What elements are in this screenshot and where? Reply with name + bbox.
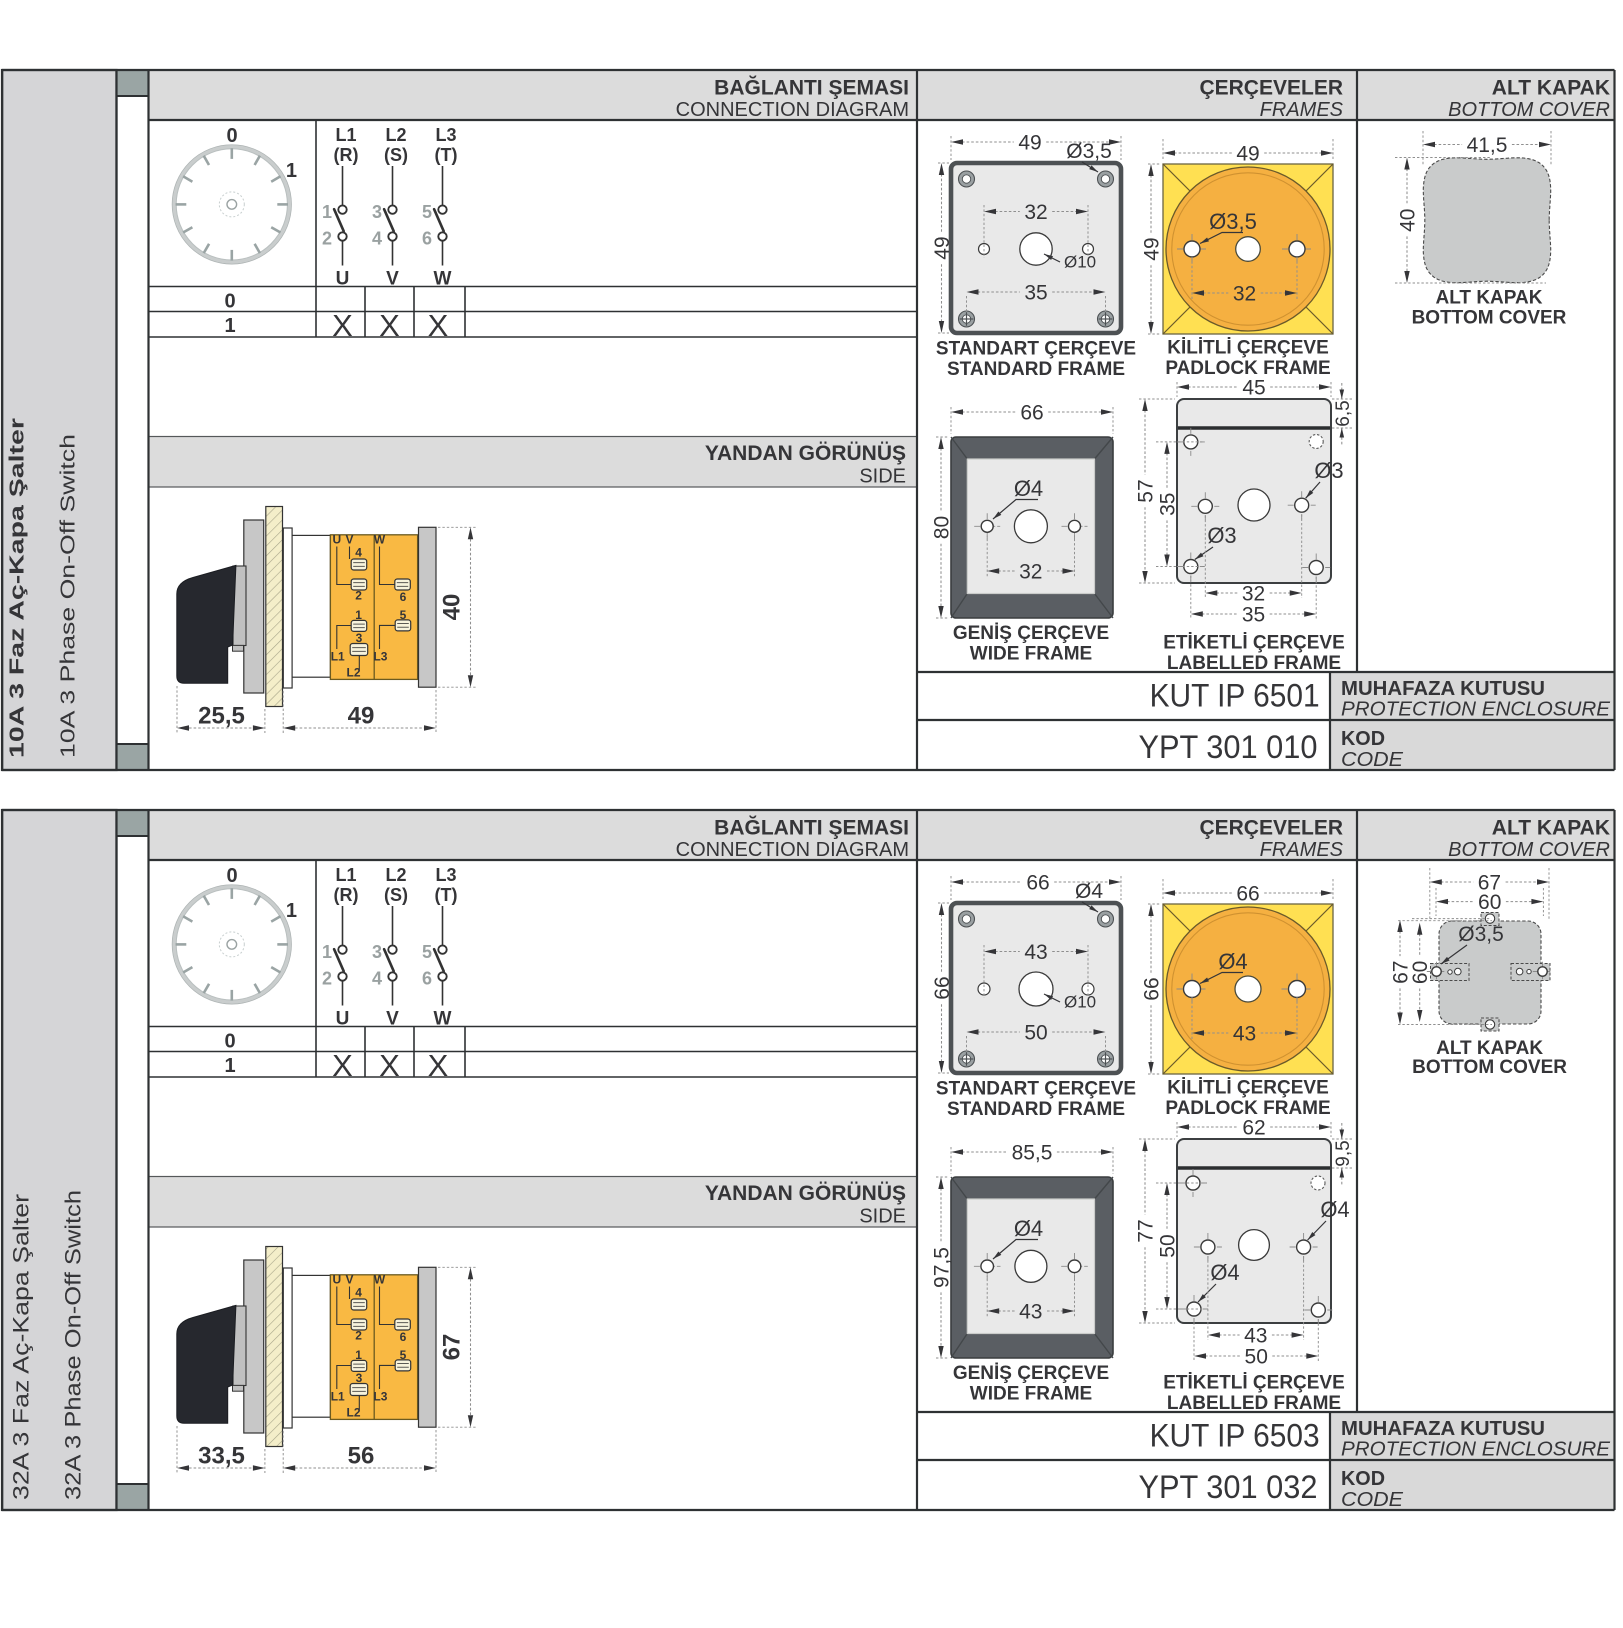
svg-text:10A 3 Phase On-Off Switch: 10A 3 Phase On-Off Switch xyxy=(58,434,80,758)
svg-text:77: 77 xyxy=(1135,1219,1158,1242)
svg-text:YPT 301 010: YPT 301 010 xyxy=(1139,729,1318,765)
svg-text:BAĞLANTI ŞEMASI: BAĞLANTI ŞEMASI xyxy=(714,816,909,840)
svg-text:Ø4: Ø4 xyxy=(1014,1216,1043,1241)
svg-text:YPT 301 032: YPT 301 032 xyxy=(1139,1469,1318,1505)
svg-text:FRAMES: FRAMES xyxy=(1260,99,1344,121)
svg-text:GENİŞ ÇERÇEVE: GENİŞ ÇERÇEVE xyxy=(953,1363,1109,1384)
svg-text:STANDART ÇERÇEVE: STANDART ÇERÇEVE xyxy=(936,339,1136,360)
svg-text:60: 60 xyxy=(1478,891,1501,914)
svg-text:BOTTOM COVER: BOTTOM COVER xyxy=(1448,839,1610,861)
svg-text:X: X xyxy=(332,308,353,343)
svg-text:85,5: 85,5 xyxy=(1012,1142,1053,1165)
svg-text:U: U xyxy=(332,533,341,547)
svg-text:32: 32 xyxy=(1024,201,1047,224)
svg-text:X: X xyxy=(332,1048,353,1083)
svg-text:0: 0 xyxy=(224,290,235,312)
svg-text:BOTTOM COVER: BOTTOM COVER xyxy=(1448,99,1610,121)
svg-text:KİLİTLİ ÇERÇEVE: KİLİTLİ ÇERÇEVE xyxy=(1167,338,1329,359)
svg-text:2: 2 xyxy=(355,589,362,603)
svg-text:6: 6 xyxy=(422,969,432,989)
svg-text:97,5: 97,5 xyxy=(931,1247,954,1288)
svg-text:43: 43 xyxy=(1233,1023,1256,1046)
svg-text:Ø3: Ø3 xyxy=(1314,458,1343,483)
svg-text:25,5: 25,5 xyxy=(198,703,245,730)
svg-text:CONNECTION DIAGRAM: CONNECTION DIAGRAM xyxy=(676,839,909,861)
svg-text:56: 56 xyxy=(348,1443,375,1470)
svg-text:3: 3 xyxy=(356,631,363,645)
svg-text:STANDARD FRAME: STANDARD FRAME xyxy=(947,359,1125,380)
svg-text:50: 50 xyxy=(1245,1346,1268,1369)
svg-text:L2: L2 xyxy=(346,1406,360,1420)
svg-text:49: 49 xyxy=(1141,237,1164,260)
svg-text:50: 50 xyxy=(1024,1022,1047,1045)
svg-text:Ø3: Ø3 xyxy=(1207,523,1236,548)
svg-text:32A 3 Phase On-Off Switch: 32A 3 Phase On-Off Switch xyxy=(61,1190,86,1500)
svg-text:3: 3 xyxy=(372,942,382,962)
svg-text:35: 35 xyxy=(1024,282,1047,305)
svg-text:ALT KAPAK: ALT KAPAK xyxy=(1436,1038,1543,1059)
svg-text:U: U xyxy=(336,269,350,290)
svg-text:L2: L2 xyxy=(346,666,360,680)
svg-text:KOD: KOD xyxy=(1341,727,1385,750)
svg-text:57: 57 xyxy=(1135,479,1158,502)
svg-text:X: X xyxy=(428,1048,449,1083)
svg-text:49: 49 xyxy=(348,703,375,730)
svg-text:(T): (T) xyxy=(435,885,458,905)
svg-text:(S): (S) xyxy=(384,145,408,165)
svg-text:SIDE: SIDE xyxy=(859,466,906,488)
svg-text:WIDE FRAME: WIDE FRAME xyxy=(970,644,1092,665)
svg-text:40: 40 xyxy=(439,594,466,621)
svg-text:ALT KAPAK: ALT KAPAK xyxy=(1492,77,1610,100)
svg-text:(T): (T) xyxy=(435,145,458,165)
svg-text:Ø4: Ø4 xyxy=(1075,880,1103,903)
svg-text:6: 6 xyxy=(400,1330,407,1344)
svg-text:V: V xyxy=(345,1273,353,1287)
svg-text:10A 3 Faz Aç-Kapa Şalter: 10A 3 Faz Aç-Kapa Şalter xyxy=(7,418,29,758)
svg-text:5: 5 xyxy=(422,942,432,962)
svg-text:32: 32 xyxy=(1242,583,1265,606)
svg-text:32A 3 Faz Aç-Kapa Şalter: 32A 3 Faz Aç-Kapa Şalter xyxy=(9,1193,34,1500)
svg-text:(R): (R) xyxy=(334,145,359,165)
svg-text:SIDE: SIDE xyxy=(859,1206,906,1228)
svg-text:66: 66 xyxy=(1141,977,1164,1000)
svg-text:1: 1 xyxy=(322,202,332,222)
svg-text:Ø3,5: Ø3,5 xyxy=(1458,923,1504,946)
svg-text:YANDAN GÖRÜNÜŞ: YANDAN GÖRÜNÜŞ xyxy=(705,442,906,465)
svg-text:W: W xyxy=(374,1273,386,1287)
svg-text:2: 2 xyxy=(322,969,332,989)
svg-text:32: 32 xyxy=(1019,561,1042,584)
svg-text:2: 2 xyxy=(322,229,332,249)
svg-text:V: V xyxy=(345,533,353,547)
svg-text:66: 66 xyxy=(931,976,954,999)
svg-text:U: U xyxy=(336,1009,350,1030)
svg-text:1: 1 xyxy=(286,900,297,922)
svg-text:49: 49 xyxy=(1018,132,1041,155)
svg-text:2: 2 xyxy=(355,1329,362,1343)
svg-text:X: X xyxy=(428,308,449,343)
svg-text:U: U xyxy=(332,1273,341,1287)
svg-text:Ø3,5: Ø3,5 xyxy=(1209,209,1257,234)
svg-text:W: W xyxy=(374,533,386,547)
svg-text:X: X xyxy=(379,1048,400,1083)
svg-text:60: 60 xyxy=(1409,961,1432,984)
svg-text:CODE: CODE xyxy=(1341,748,1403,771)
svg-text:45: 45 xyxy=(1242,377,1265,400)
svg-text:32: 32 xyxy=(1233,283,1256,306)
svg-text:L3: L3 xyxy=(435,125,456,145)
svg-text:W: W xyxy=(434,1009,452,1030)
svg-text:43: 43 xyxy=(1019,1301,1042,1324)
svg-text:LABELLED FRAME: LABELLED FRAME xyxy=(1167,653,1341,674)
svg-text:KUT IP 6501: KUT IP 6501 xyxy=(1150,678,1320,714)
svg-text:PROTECTION ENCLOSURE: PROTECTION ENCLOSURE xyxy=(1341,1438,1610,1461)
svg-text:9,5: 9,5 xyxy=(1333,1140,1354,1166)
svg-text:Ø3,5: Ø3,5 xyxy=(1066,140,1112,163)
svg-text:1: 1 xyxy=(322,942,332,962)
svg-text:STANDART ÇERÇEVE: STANDART ÇERÇEVE xyxy=(936,1079,1136,1100)
svg-text:Ø4: Ø4 xyxy=(1014,476,1043,501)
svg-text:BAĞLANTI ŞEMASI: BAĞLANTI ŞEMASI xyxy=(714,76,909,100)
svg-text:66: 66 xyxy=(1236,883,1259,906)
svg-text:0: 0 xyxy=(224,1030,235,1052)
svg-text:67: 67 xyxy=(439,1334,466,1361)
svg-text:49: 49 xyxy=(1236,143,1259,166)
svg-text:LABELLED FRAME: LABELLED FRAME xyxy=(1167,1393,1341,1414)
svg-text:L1: L1 xyxy=(335,125,356,145)
svg-text:CODE: CODE xyxy=(1341,1488,1403,1511)
svg-text:Ø10: Ø10 xyxy=(1064,993,1096,1012)
svg-text:1: 1 xyxy=(286,160,297,182)
svg-text:FRAMES: FRAMES xyxy=(1260,839,1344,861)
svg-text:PROTECTION ENCLOSURE: PROTECTION ENCLOSURE xyxy=(1341,698,1610,721)
svg-text:L3: L3 xyxy=(373,650,387,664)
svg-text:BOTTOM COVER: BOTTOM COVER xyxy=(1412,1057,1567,1078)
svg-text:0: 0 xyxy=(226,865,237,887)
svg-text:43: 43 xyxy=(1244,1325,1267,1348)
svg-text:ETİKETLİ ÇERÇEVE: ETİKETLİ ÇERÇEVE xyxy=(1163,633,1345,654)
svg-text:6,5: 6,5 xyxy=(1333,400,1354,426)
svg-text:6: 6 xyxy=(422,229,432,249)
svg-text:L1: L1 xyxy=(335,865,356,885)
svg-text:ALT KAPAK: ALT KAPAK xyxy=(1436,288,1543,309)
svg-text:1: 1 xyxy=(355,608,362,622)
svg-text:L3: L3 xyxy=(373,1390,387,1404)
svg-text:66: 66 xyxy=(1026,872,1049,895)
svg-text:5: 5 xyxy=(400,1348,407,1362)
svg-text:ÇERÇEVELER: ÇERÇEVELER xyxy=(1199,77,1343,100)
svg-text:L2: L2 xyxy=(385,865,406,885)
svg-text:62: 62 xyxy=(1242,1117,1265,1140)
svg-text:35: 35 xyxy=(1242,604,1265,627)
svg-text:1: 1 xyxy=(224,315,235,337)
svg-text:YANDAN GÖRÜNÜŞ: YANDAN GÖRÜNÜŞ xyxy=(705,1182,906,1205)
svg-text:Ø4: Ø4 xyxy=(1320,1197,1349,1222)
svg-text:1: 1 xyxy=(224,1055,235,1077)
svg-text:W: W xyxy=(434,269,452,290)
svg-text:V: V xyxy=(386,1009,399,1030)
svg-text:4: 4 xyxy=(372,969,382,989)
svg-text:KİLİTLİ ÇERÇEVE: KİLİTLİ ÇERÇEVE xyxy=(1167,1078,1329,1099)
svg-text:(R): (R) xyxy=(334,885,359,905)
svg-text:L1: L1 xyxy=(331,1390,345,1404)
svg-text:80: 80 xyxy=(931,516,954,539)
svg-text:3: 3 xyxy=(356,1371,363,1385)
svg-text:Ø4: Ø4 xyxy=(1210,1260,1239,1285)
svg-text:66: 66 xyxy=(1020,402,1043,425)
svg-text:50: 50 xyxy=(1157,1234,1180,1257)
svg-text:0: 0 xyxy=(226,125,237,147)
svg-text:(S): (S) xyxy=(384,885,408,905)
svg-text:35: 35 xyxy=(1157,493,1180,516)
svg-text:KOD: KOD xyxy=(1341,1467,1385,1490)
svg-text:49: 49 xyxy=(931,236,954,259)
svg-text:5: 5 xyxy=(422,202,432,222)
svg-text:L2: L2 xyxy=(385,125,406,145)
svg-text:43: 43 xyxy=(1024,941,1047,964)
svg-text:41,5: 41,5 xyxy=(1467,134,1508,157)
svg-text:WIDE FRAME: WIDE FRAME xyxy=(970,1384,1092,1405)
svg-text:GENİŞ ÇERÇEVE: GENİŞ ÇERÇEVE xyxy=(953,623,1109,644)
svg-text:ÇERÇEVELER: ÇERÇEVELER xyxy=(1199,817,1343,840)
svg-text:CONNECTION DIAGRAM: CONNECTION DIAGRAM xyxy=(676,99,909,121)
svg-text:Ø10: Ø10 xyxy=(1064,253,1096,272)
svg-text:Ø4: Ø4 xyxy=(1218,949,1247,974)
svg-text:5: 5 xyxy=(400,608,407,622)
svg-text:1: 1 xyxy=(355,1348,362,1362)
svg-text:40: 40 xyxy=(1397,209,1420,232)
svg-text:STANDARD FRAME: STANDARD FRAME xyxy=(947,1099,1125,1120)
svg-text:L1: L1 xyxy=(331,650,345,664)
svg-text:KUT IP 6503: KUT IP 6503 xyxy=(1150,1418,1320,1454)
svg-text:L3: L3 xyxy=(435,865,456,885)
svg-text:6: 6 xyxy=(400,590,407,604)
svg-text:33,5: 33,5 xyxy=(198,1443,245,1470)
svg-text:4: 4 xyxy=(355,546,362,560)
svg-text:4: 4 xyxy=(372,229,382,249)
svg-text:ETİKETLİ ÇERÇEVE: ETİKETLİ ÇERÇEVE xyxy=(1163,1373,1345,1394)
svg-text:3: 3 xyxy=(372,202,382,222)
svg-text:ALT KAPAK: ALT KAPAK xyxy=(1492,817,1610,840)
svg-text:BOTTOM COVER: BOTTOM COVER xyxy=(1412,308,1567,329)
svg-text:X: X xyxy=(379,308,400,343)
svg-text:V: V xyxy=(386,269,399,290)
svg-text:4: 4 xyxy=(355,1286,362,1300)
